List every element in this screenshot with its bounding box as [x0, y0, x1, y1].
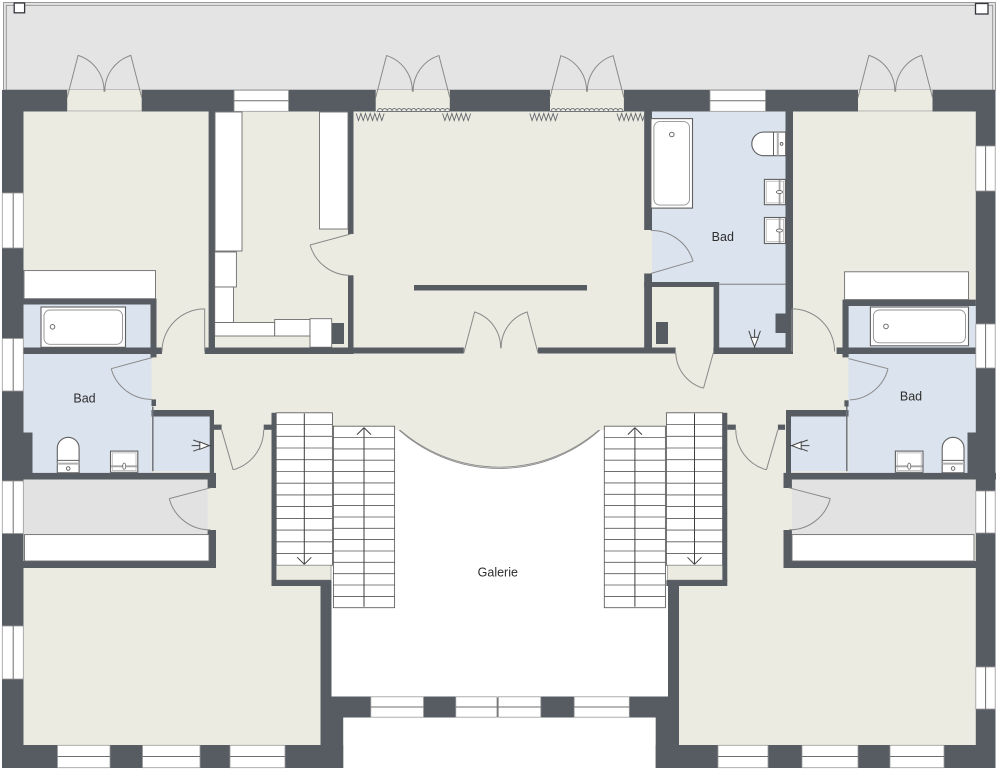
svg-text:Bad: Bad [900, 390, 922, 404]
svg-text:Bad: Bad [73, 392, 95, 406]
svg-text:Bad: Bad [712, 230, 734, 244]
svg-text:Galerie: Galerie [478, 566, 518, 580]
